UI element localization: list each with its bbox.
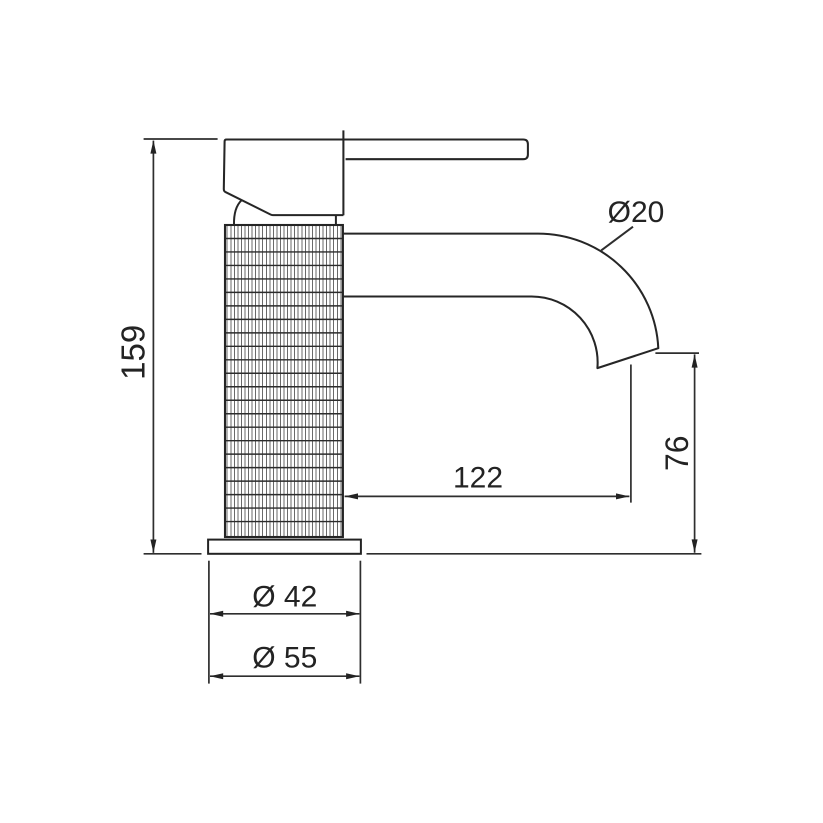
svg-text:159: 159 [115, 325, 152, 380]
svg-text:Ø20: Ø20 [608, 196, 665, 229]
svg-text:122: 122 [453, 461, 503, 494]
svg-text:76: 76 [659, 435, 695, 471]
svg-text:Ø 42: Ø 42 [252, 580, 317, 613]
svg-text:Ø 55: Ø 55 [252, 642, 317, 675]
